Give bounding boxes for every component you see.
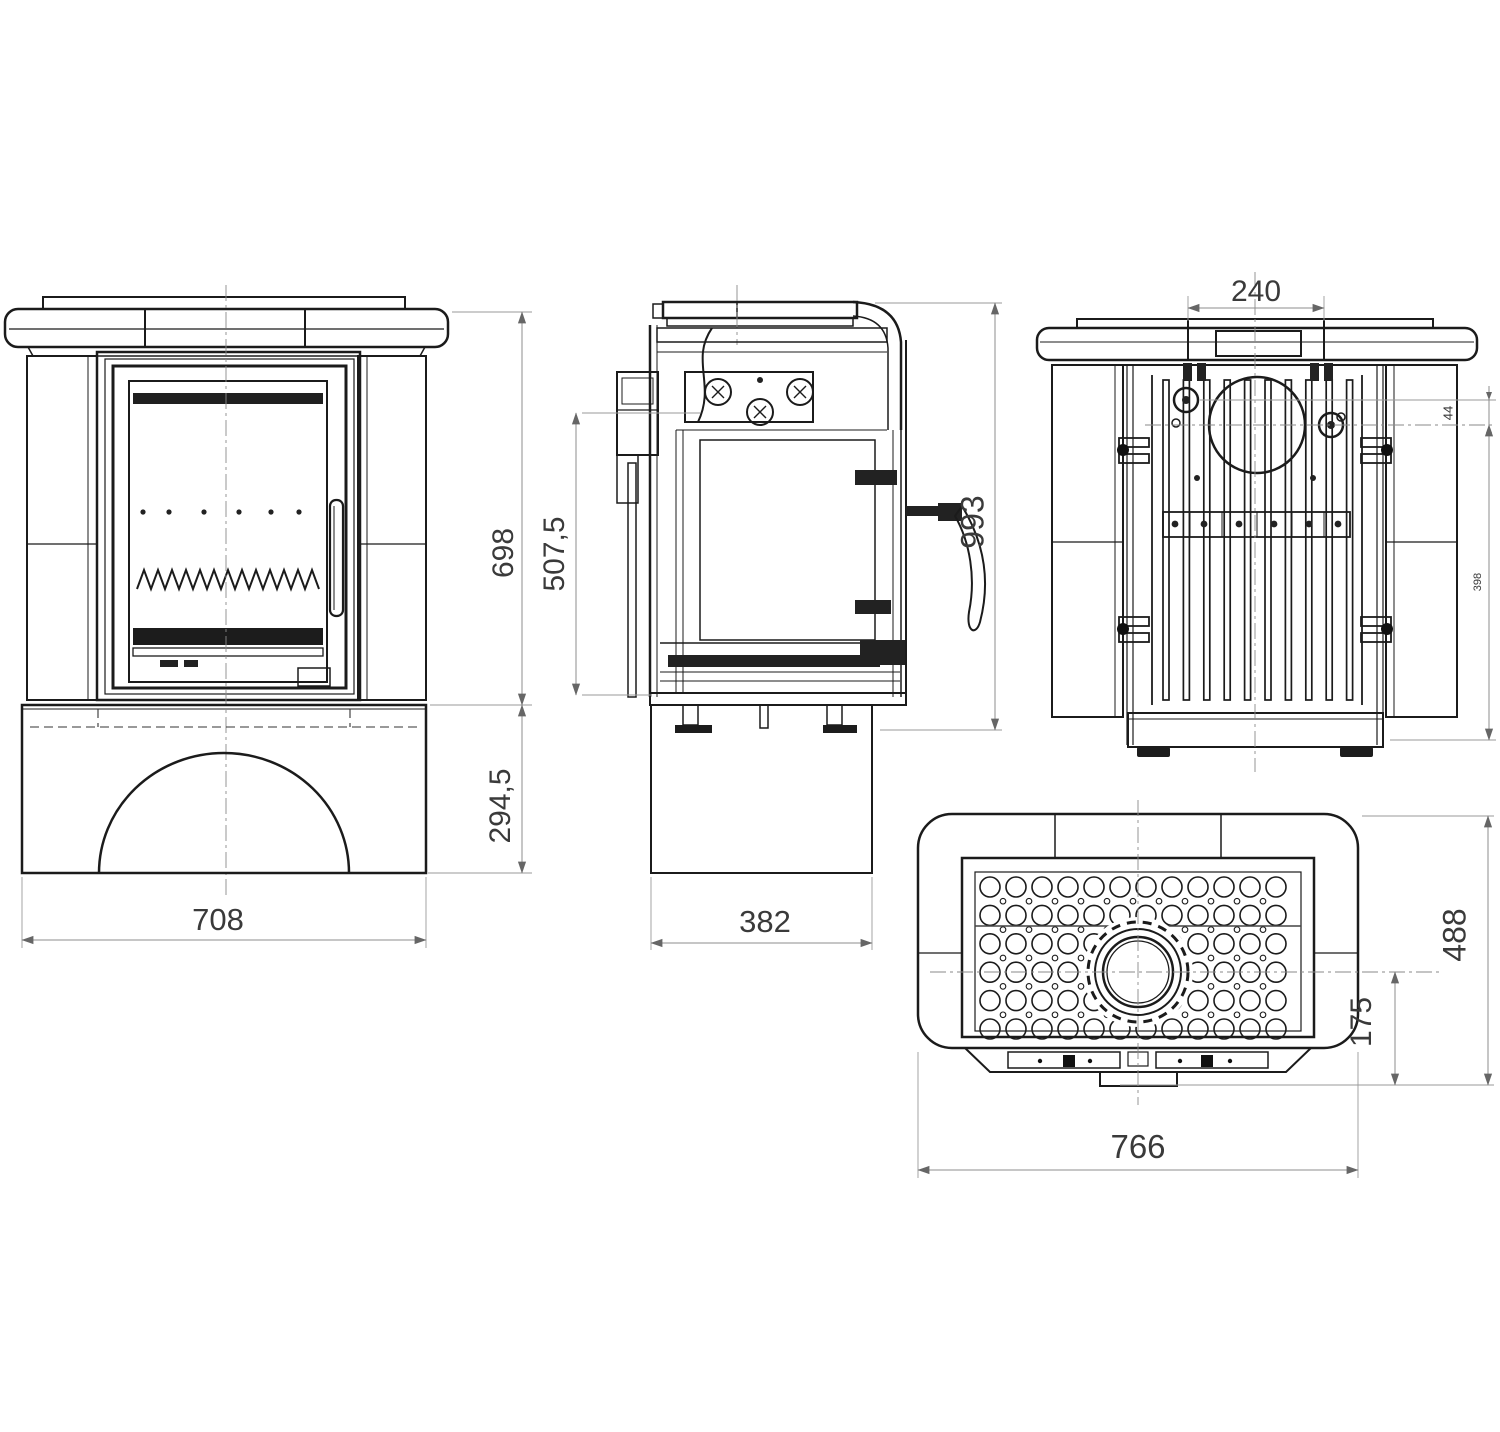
side-air-intake [617,372,658,455]
dim-back-outlet-offset-label: 44 [1440,406,1455,420]
top-view: 488 175 766 [918,800,1494,1178]
front-log-retainer-zigzag [137,570,319,589]
technical-drawing-canvas: 698 294,5 708 [0,0,1500,1427]
front-base-arch [99,753,349,873]
dim-front-upper-height-label: 698 [487,528,520,578]
front-air-holes [140,509,301,514]
dim-front-upper-height: 698 [430,312,532,705]
dim-front-base-height: 294,5 [428,705,532,873]
side-view: 993 507,5 382 [538,285,1002,950]
front-left-column [27,356,97,700]
dim-side-depth-label: 382 [739,904,791,939]
dim-back-outlet-width: 240 [1188,275,1324,321]
dim-side-depth: 382 [651,877,872,950]
dim-top-flue-offset-label: 175 [1345,997,1378,1047]
front-view: 698 294,5 708 [5,285,532,948]
dim-front-base-height-label: 294,5 [484,768,517,843]
dim-back-rear-span-label: 398 [1472,573,1484,591]
technical-drawing-page: 698 294,5 708 [0,0,1500,1427]
dim-top-depth-label: 488 [1436,908,1472,961]
back-flue-box [1216,331,1301,356]
dim-back-outlet-width-label: 240 [1231,275,1281,308]
back-left-column [1052,365,1123,717]
back-view: 240 44 398 [1037,272,1496,772]
front-latch-plate [298,668,330,686]
dim-front-width: 708 [22,877,426,948]
back-heat-ribs [1163,380,1353,700]
front-mantel [5,309,448,347]
dim-back-rear-span: 398 [1390,425,1496,740]
front-ash-lip [133,628,323,645]
dim-top-width-label: 766 [1110,1128,1165,1165]
dim-top-flue-offset: 175 [1345,972,1395,1085]
dim-front-width-label: 708 [192,902,244,937]
front-right-column [358,356,426,700]
front-glass-top-bar [133,393,323,404]
side-top-plate [663,302,857,318]
dim-side-total-height-label: 993 [954,495,990,548]
side-bottom-plate [650,693,906,705]
front-door-handle [330,500,343,616]
front-top-strip [43,297,405,309]
side-rear-duct [853,302,901,430]
back-floor-plate [1128,713,1383,747]
front-base [22,705,426,873]
side-firebox [700,440,875,640]
side-ash-band [668,655,880,667]
top-handle [1100,1072,1177,1086]
dim-side-firebox-height-label: 507,5 [538,516,571,591]
